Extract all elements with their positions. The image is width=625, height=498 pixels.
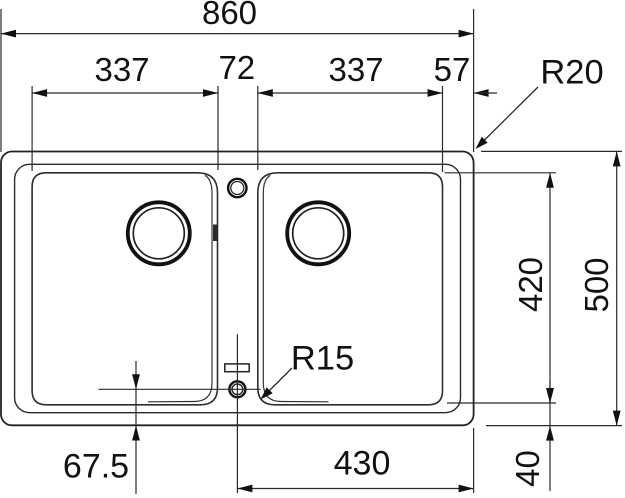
svg-text:337: 337 — [328, 51, 383, 88]
svg-text:500: 500 — [578, 257, 615, 312]
svg-text:337: 337 — [94, 51, 149, 88]
svg-text:430: 430 — [334, 445, 391, 483]
svg-text:72: 72 — [218, 49, 255, 86]
svg-text:R15: R15 — [291, 340, 354, 378]
svg-text:420: 420 — [512, 257, 549, 312]
svg-text:67.5: 67.5 — [63, 448, 129, 486]
svg-text:40: 40 — [509, 450, 546, 487]
svg-text:57: 57 — [434, 51, 471, 88]
svg-text:860: 860 — [202, 0, 257, 31]
svg-text:R20: R20 — [540, 54, 603, 92]
